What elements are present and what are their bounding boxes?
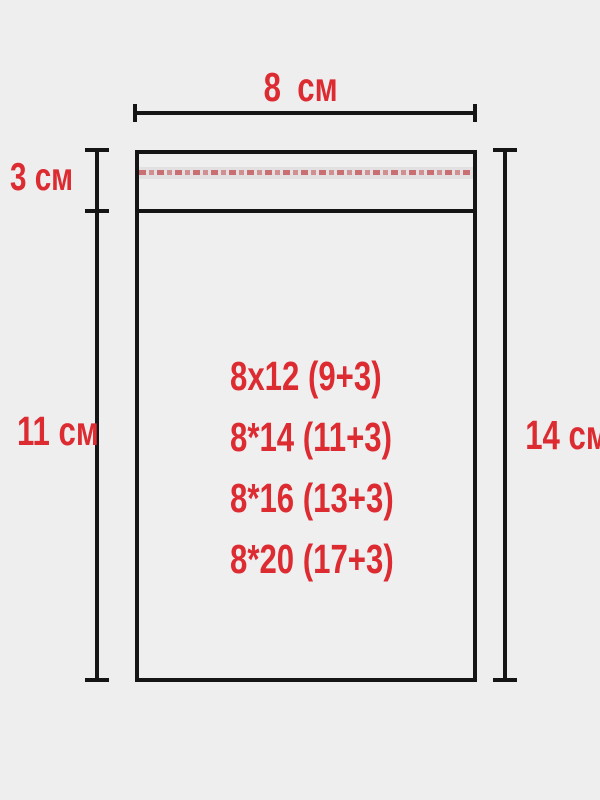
flap-fold-line [135, 209, 477, 213]
adhesive-strip-print-pattern [139, 170, 473, 175]
width-dimension-tick-right [473, 104, 477, 122]
left-dimension-tick-bottom [85, 678, 109, 682]
size-list-item: 8*16 (13+3) [230, 468, 445, 529]
right-dimension-tick-bottom [493, 678, 517, 682]
total-height-label: 14 см [512, 412, 600, 459]
flap-height-value: 3 см [10, 156, 73, 200]
flap-height-label: 3 см [0, 156, 78, 200]
size-list-item-text: 8x12 (9+3) [230, 346, 382, 407]
body-height-value: 11 см [17, 408, 99, 455]
adhesive-strip [139, 167, 473, 179]
size-list-item: 8x12 (9+3) [230, 346, 445, 407]
width-dimension-label: 8 см [226, 64, 376, 111]
width-dimension-tick-left [133, 104, 137, 122]
total-height-value: 14 см [525, 412, 600, 459]
body-height-label: 11 см [4, 408, 98, 455]
left-dimension-tick-middle [85, 209, 109, 213]
width-dimension-value: 8 см [264, 64, 338, 111]
size-list-item-text: 8*16 (13+3) [230, 468, 394, 529]
right-dimension-line [503, 148, 507, 682]
width-dimension-line [135, 111, 477, 115]
size-list: 8x12 (9+3) 8*14 (11+3) 8*16 (13+3) 8*20 … [230, 346, 445, 590]
product-dimension-diagram: 8 см 3 см 11 см 14 см 8x12 (9+3) 8*14 (1… [0, 0, 600, 800]
left-dimension-tick-top [85, 148, 109, 152]
size-list-item-text: 8*20 (17+3) [230, 529, 394, 590]
right-dimension-tick-top [493, 148, 517, 152]
size-list-item-text: 8*14 (11+3) [230, 407, 392, 468]
size-list-item: 8*14 (11+3) [230, 407, 445, 468]
size-list-item: 8*20 (17+3) [230, 529, 445, 590]
